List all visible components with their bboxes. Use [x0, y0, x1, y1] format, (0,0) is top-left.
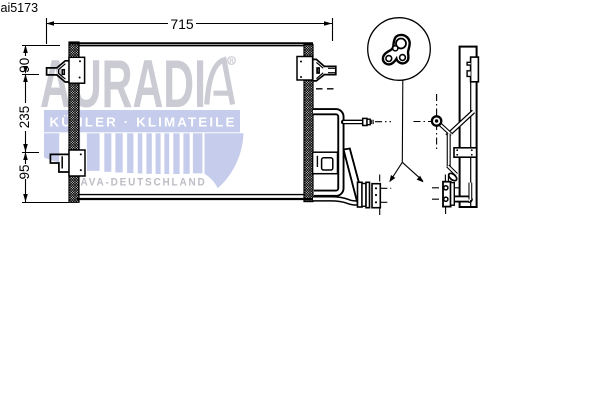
svg-text:R: R [229, 59, 234, 65]
svg-text:ai5173: ai5173 [1, 1, 39, 15]
svg-text:AVA-DEUTSCHLAND: AVA-DEUTSCHLAND [81, 177, 207, 189]
svg-text:90: 90 [17, 58, 32, 73]
svg-text:95: 95 [17, 164, 32, 179]
svg-text:715: 715 [170, 16, 194, 32]
svg-text:235: 235 [17, 106, 32, 129]
